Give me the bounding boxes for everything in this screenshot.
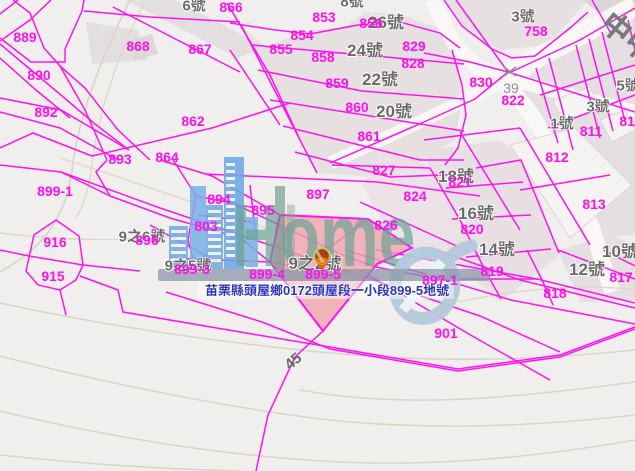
svg-text:6: 6 xyxy=(182,0,190,14)
svg-text:8: 8 xyxy=(340,0,348,10)
svg-text:897: 897 xyxy=(306,186,330,202)
svg-text:861: 861 xyxy=(357,128,381,144)
svg-text:889: 889 xyxy=(13,29,37,45)
svg-text:856: 856 xyxy=(359,15,383,31)
svg-text:855: 855 xyxy=(269,41,293,57)
svg-text:811: 811 xyxy=(580,123,603,139)
svg-text:14: 14 xyxy=(479,240,498,259)
svg-text:812: 812 xyxy=(545,149,569,165)
svg-text:10: 10 xyxy=(602,242,621,261)
svg-text:892: 892 xyxy=(34,104,58,120)
svg-text:858: 858 xyxy=(311,49,335,65)
svg-text:1: 1 xyxy=(550,115,558,132)
svg-text:9: 9 xyxy=(165,257,173,274)
svg-text:854: 854 xyxy=(290,27,314,43)
svg-text:859: 859 xyxy=(325,75,349,91)
svg-text:916: 916 xyxy=(43,234,67,250)
svg-text:896: 896 xyxy=(135,232,159,248)
svg-text:828: 828 xyxy=(401,55,425,71)
svg-text:758: 758 xyxy=(524,23,548,39)
svg-text:864: 864 xyxy=(155,149,179,165)
svg-text:24: 24 xyxy=(347,41,366,60)
svg-text:39: 39 xyxy=(503,80,519,96)
svg-text:22: 22 xyxy=(362,70,381,89)
svg-text:3: 3 xyxy=(511,8,519,25)
svg-text:0172: 0172 xyxy=(283,283,312,298)
svg-text:5: 5 xyxy=(616,77,624,94)
svg-text:868: 868 xyxy=(126,38,150,54)
svg-text:819: 819 xyxy=(480,263,504,279)
svg-text:817: 817 xyxy=(609,269,633,285)
svg-text:893: 893 xyxy=(108,151,132,167)
svg-text:901: 901 xyxy=(434,325,458,341)
svg-text:20: 20 xyxy=(376,102,395,121)
svg-text:867: 867 xyxy=(188,41,212,57)
svg-text:818: 818 xyxy=(543,285,567,301)
svg-text:853: 853 xyxy=(312,9,336,25)
svg-text:810: 810 xyxy=(619,113,635,129)
svg-text:813: 813 xyxy=(582,196,606,212)
svg-text:866: 866 xyxy=(219,0,243,15)
svg-text:899-3: 899-3 xyxy=(174,261,210,277)
svg-text:12: 12 xyxy=(569,260,588,279)
svg-text:915: 915 xyxy=(41,268,65,284)
svg-text:890: 890 xyxy=(27,67,51,83)
svg-text:803: 803 xyxy=(194,218,218,234)
svg-text:821: 821 xyxy=(448,174,472,190)
svg-text:3: 3 xyxy=(586,98,594,115)
svg-text:827: 827 xyxy=(372,162,396,178)
svg-text:899-4: 899-4 xyxy=(249,266,285,282)
svg-text:899-1: 899-1 xyxy=(37,183,73,199)
svg-text:895: 895 xyxy=(251,202,275,218)
svg-text:862: 862 xyxy=(181,113,205,129)
svg-text:9: 9 xyxy=(289,254,298,273)
svg-text:894: 894 xyxy=(207,191,231,207)
svg-text:824: 824 xyxy=(403,188,427,204)
svg-text:897-1: 897-1 xyxy=(422,272,458,288)
svg-text:9: 9 xyxy=(119,228,127,245)
svg-text:830: 830 xyxy=(469,74,493,90)
svg-text:899-5: 899-5 xyxy=(390,283,423,298)
svg-text:826: 826 xyxy=(374,217,398,233)
svg-text:860: 860 xyxy=(345,99,369,115)
svg-text:829: 829 xyxy=(402,38,426,54)
svg-text:820: 820 xyxy=(460,221,484,237)
